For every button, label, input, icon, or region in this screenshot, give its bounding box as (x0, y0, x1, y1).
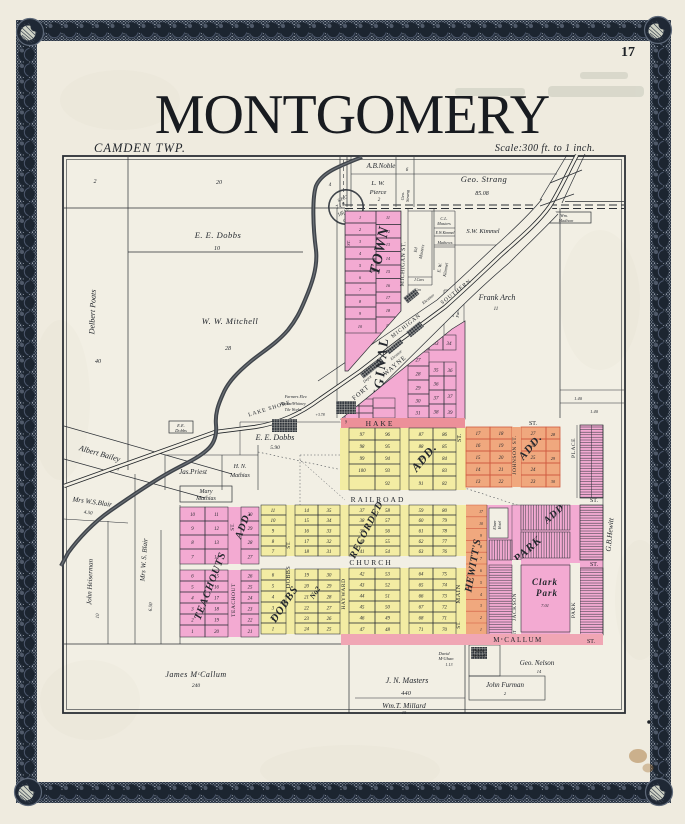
svg-text:MᶜGhan: MᶜGhan (438, 656, 455, 661)
svg-text:46: 46 (360, 617, 365, 622)
svg-text:11: 11 (214, 513, 218, 518)
svg-text:MᶜCALLUM: MᶜCALLUM (493, 636, 543, 644)
svg-text:23: 23 (248, 608, 253, 613)
svg-text:74: 74 (442, 584, 447, 589)
svg-text:Mary: Mary (199, 489, 213, 495)
svg-text:76: 76 (442, 550, 447, 555)
svg-text:2: 2 (94, 179, 97, 185)
svg-text:71: 71 (419, 628, 424, 633)
svg-text:1: 1 (191, 630, 193, 635)
svg-text:67: 67 (419, 606, 424, 611)
svg-text:Hotel: Hotel (498, 521, 502, 530)
svg-text:ST.: ST. (286, 541, 292, 549)
svg-text:5.90: 5.90 (270, 445, 280, 451)
svg-text:School: School (473, 653, 486, 658)
svg-text:Masters: Masters (436, 221, 451, 226)
svg-text:37: 37 (434, 397, 440, 402)
svg-text:86: 86 (442, 433, 447, 438)
svg-text:27: 27 (327, 607, 332, 612)
svg-text:17: 17 (304, 540, 309, 545)
svg-text:5: 5 (480, 581, 482, 585)
svg-text:James MᶜCallum: James MᶜCallum (165, 670, 226, 679)
svg-text:37: 37 (448, 395, 454, 400)
svg-text:22: 22 (304, 607, 309, 612)
svg-text:9: 9 (480, 534, 482, 538)
svg-text:21: 21 (248, 630, 253, 635)
svg-text:17: 17 (621, 45, 635, 60)
svg-text:92: 92 (385, 482, 390, 487)
svg-text:§: § (345, 419, 347, 424)
svg-text:4: 4 (480, 593, 482, 597)
svg-text:6.50: 6.50 (149, 602, 155, 612)
svg-text:Geo. Nelson: Geo. Nelson (520, 659, 555, 667)
svg-text:28: 28 (416, 373, 422, 378)
svg-text:35: 35 (327, 509, 332, 514)
svg-text:JACKSON: JACKSON (512, 593, 518, 621)
svg-text:Tile Works: Tile Works (285, 407, 302, 412)
svg-text:23: 23 (304, 617, 309, 622)
svg-text:14: 14 (304, 509, 309, 514)
svg-text:19: 19 (499, 444, 504, 449)
svg-text:51: 51 (385, 595, 390, 600)
svg-text:10: 10 (479, 522, 483, 526)
svg-text:HAYWARD: HAYWARD (341, 578, 347, 609)
svg-text:15: 15 (402, 710, 407, 715)
svg-text:ST.: ST. (529, 421, 538, 427)
svg-text:25: 25 (248, 586, 253, 591)
svg-text:A.B.Noble: A.B.Noble (366, 162, 396, 170)
svg-text:83: 83 (442, 469, 447, 474)
svg-text:3: 3 (480, 604, 482, 608)
svg-text:71: 71 (442, 617, 447, 622)
svg-text:TEACHOUT: TEACHOUT (231, 583, 237, 617)
svg-text:25: 25 (327, 628, 332, 633)
svg-text:Mathews: Mathews (436, 240, 452, 245)
svg-text:E. E. Dobbs: E. E. Dobbs (194, 230, 242, 240)
svg-text:40: 40 (95, 358, 101, 365)
svg-text:32: 32 (327, 540, 332, 545)
svg-text:99: 99 (360, 457, 365, 462)
svg-text:3: 3 (359, 239, 361, 244)
svg-text:10: 10 (190, 513, 195, 518)
svg-text:Farmers Elev.: Farmers Elev. (284, 394, 308, 399)
svg-text:68: 68 (419, 617, 424, 622)
svg-text:57: 57 (385, 519, 390, 524)
svg-text:55: 55 (385, 540, 390, 545)
svg-text:18: 18 (214, 608, 219, 613)
svg-text:43: 43 (360, 584, 365, 589)
svg-text:80: 80 (442, 509, 447, 514)
svg-text:John Furman: John Furman (486, 681, 524, 689)
svg-text:60: 60 (419, 519, 424, 524)
svg-text:78: 78 (442, 530, 447, 535)
svg-text:39: 39 (448, 411, 454, 416)
svg-text:1.13: 1.13 (446, 662, 453, 667)
svg-text:10: 10 (96, 613, 101, 619)
svg-text:Mathias: Mathias (229, 473, 250, 479)
svg-text:10: 10 (214, 246, 220, 252)
svg-text:15: 15 (386, 269, 390, 274)
svg-text:+3.78: +3.78 (315, 413, 324, 417)
svg-text:20: 20 (216, 180, 222, 186)
svg-text:CHURCH: CHURCH (349, 558, 392, 567)
svg-text:33: 33 (327, 530, 332, 535)
svg-text:48: 48 (385, 628, 390, 633)
svg-text:34: 34 (447, 342, 453, 347)
svg-text:29: 29 (416, 387, 422, 392)
svg-text:44: 44 (360, 595, 365, 600)
svg-text:J.Cars: J.Cars (414, 278, 425, 282)
svg-text:1: 1 (359, 215, 361, 220)
svg-text:1: 1 (272, 628, 274, 633)
svg-text:35: 35 (434, 369, 440, 374)
svg-text:91: 91 (419, 482, 424, 487)
svg-text:62: 62 (419, 540, 424, 545)
svg-text:27: 27 (416, 359, 422, 364)
svg-text:Park: Park (536, 588, 558, 598)
svg-text:59: 59 (419, 509, 424, 514)
svg-text:240: 240 (192, 682, 201, 689)
svg-text:28: 28 (327, 596, 332, 601)
svg-text:98: 98 (360, 445, 365, 450)
svg-text:93: 93 (385, 469, 390, 474)
svg-text:85: 85 (442, 445, 447, 450)
svg-text:19: 19 (304, 574, 309, 579)
svg-text:66: 66 (419, 595, 424, 600)
svg-text:42: 42 (360, 573, 365, 578)
svg-text:47: 47 (360, 628, 365, 633)
svg-text:17: 17 (214, 597, 219, 602)
svg-text:Delbert Poats: Delbert Poats (87, 289, 98, 335)
svg-text:ST.: ST. (590, 498, 599, 504)
svg-text:84: 84 (442, 457, 447, 462)
svg-text:13: 13 (214, 541, 219, 546)
svg-text:MAIN: MAIN (455, 584, 462, 603)
svg-text:11: 11 (386, 215, 390, 220)
svg-text:MONTGOMERY: MONTGOMERY (155, 84, 550, 146)
svg-text:14: 14 (537, 669, 542, 674)
svg-text:4: 4 (359, 251, 361, 256)
svg-text:17: 17 (476, 432, 481, 437)
svg-text:100: 100 (358, 469, 366, 474)
svg-text:65: 65 (419, 584, 424, 589)
svg-text:75: 75 (442, 573, 447, 578)
svg-text:CAMDEN TWP.: CAMDEN TWP. (94, 141, 186, 155)
svg-text:24: 24 (248, 597, 253, 602)
svg-text:ST.: ST. (587, 639, 596, 645)
svg-text:87: 87 (419, 433, 424, 438)
svg-text:Clark: Clark (532, 577, 558, 587)
svg-text:13: 13 (476, 480, 481, 485)
svg-text:Frank Arch: Frank Arch (478, 293, 516, 302)
svg-text:PARK: PARK (571, 602, 577, 618)
svg-text:L. W.: L. W. (370, 180, 385, 187)
svg-text:31: 31 (327, 550, 332, 555)
svg-text:20: 20 (304, 585, 309, 590)
svg-text:49: 49 (385, 617, 390, 622)
svg-text:11: 11 (271, 509, 275, 514)
svg-text:1.40: 1.40 (574, 396, 583, 401)
svg-text:28: 28 (225, 346, 231, 352)
svg-text:HAKE: HAKE (366, 419, 395, 428)
svg-text:26: 26 (248, 575, 253, 580)
svg-text:5: 5 (359, 263, 361, 268)
svg-text:22: 22 (248, 619, 253, 624)
svg-text:27: 27 (248, 556, 253, 561)
svg-text:50: 50 (385, 606, 390, 611)
svg-text:85.08: 85.08 (475, 191, 489, 197)
svg-text:6: 6 (480, 569, 482, 573)
svg-text:KimmelWhitney: KimmelWhitney (279, 401, 306, 406)
svg-text:20: 20 (214, 630, 219, 635)
svg-text:79: 79 (442, 519, 447, 524)
svg-text:72: 72 (442, 606, 447, 611)
svg-text:30: 30 (416, 400, 422, 405)
svg-text:15: 15 (476, 456, 481, 461)
svg-text:S.W. Kimmel: S.W. Kimmel (466, 228, 499, 235)
svg-text:21: 21 (499, 468, 504, 473)
svg-text:Strang: Strang (405, 189, 410, 202)
svg-text:14: 14 (476, 468, 481, 473)
svg-text:73: 73 (442, 595, 447, 600)
svg-text:2: 2 (480, 616, 482, 620)
svg-text:54: 54 (385, 550, 390, 555)
svg-text:56: 56 (385, 530, 390, 535)
svg-text:36: 36 (448, 369, 454, 374)
svg-text:Dobbs: Dobbs (174, 428, 187, 433)
svg-text:Mathias: Mathias (195, 496, 216, 502)
svg-text:H. N.: H. N. (233, 464, 247, 470)
svg-text:34: 34 (327, 519, 332, 524)
svg-text:2: 2 (359, 227, 361, 232)
svg-text:16: 16 (304, 530, 309, 535)
svg-text:18: 18 (499, 432, 504, 437)
svg-text:82: 82 (442, 482, 447, 487)
svg-text:36: 36 (434, 383, 440, 388)
svg-text:94: 94 (385, 457, 390, 462)
svg-text:ST.: ST. (346, 240, 351, 246)
svg-text:Wm.T. Millard: Wm.T. Millard (382, 701, 426, 710)
svg-text:12: 12 (214, 527, 219, 532)
svg-text:E.W.Kimmel: E.W.Kimmel (435, 231, 455, 235)
svg-text:30: 30 (327, 574, 332, 579)
svg-text:28: 28 (248, 541, 253, 546)
svg-text:22: 22 (499, 480, 504, 485)
svg-text:ST.: ST. (457, 433, 463, 442)
svg-text:18: 18 (304, 550, 309, 555)
svg-text:45: 45 (360, 606, 365, 611)
svg-text:J. N. Masters: J. N. Masters (386, 676, 429, 685)
svg-text:ST.: ST. (456, 621, 462, 629)
svg-text:95: 95 (385, 445, 390, 450)
svg-text:7.01: 7.01 (541, 603, 549, 608)
svg-text:Scale:300 ft. to 1 inch.: Scale:300 ft. to 1 inch. (495, 143, 595, 154)
svg-text:52: 52 (385, 584, 390, 589)
svg-text:ST.: ST. (590, 562, 599, 568)
svg-text:70: 70 (442, 628, 447, 633)
svg-text:26: 26 (327, 617, 332, 622)
svg-text:Jas.Priest: Jas.Priest (179, 468, 208, 476)
svg-text:24: 24 (304, 628, 309, 633)
svg-text:W. W. Mitchell: W. W. Mitchell (202, 316, 259, 326)
svg-text:16: 16 (476, 444, 481, 449)
svg-text:24: 24 (531, 468, 536, 473)
svg-text:11: 11 (494, 307, 499, 312)
svg-text:1: 1 (480, 628, 482, 632)
svg-text:25: 25 (531, 456, 536, 461)
svg-text:1.40: 1.40 (590, 409, 599, 414)
svg-text:31: 31 (416, 412, 421, 417)
svg-text:97: 97 (360, 433, 365, 438)
svg-text:29: 29 (327, 585, 332, 590)
svg-text:19: 19 (214, 619, 219, 624)
svg-text:23: 23 (531, 480, 536, 485)
svg-text:10: 10 (271, 519, 276, 524)
svg-text:PLACE: PLACE (571, 438, 577, 458)
svg-text:77: 77 (442, 540, 447, 545)
svg-text:E. E. Dobbs: E. E. Dobbs (255, 433, 295, 442)
svg-text:Elmer: Elmer (493, 520, 497, 531)
svg-text:96: 96 (385, 433, 390, 438)
svg-text:58: 58 (385, 509, 390, 514)
svg-text:20: 20 (499, 456, 504, 461)
svg-text:Pierce: Pierce (369, 189, 387, 196)
svg-text:53: 53 (385, 573, 390, 578)
svg-text:63: 63 (419, 550, 424, 555)
svg-text:John Heiserman: John Heiserman (85, 558, 95, 605)
svg-text:440: 440 (401, 690, 412, 697)
svg-text:64: 64 (419, 573, 424, 578)
svg-text:38: 38 (434, 411, 440, 416)
svg-text:37: 37 (360, 509, 365, 514)
svg-text:61: 61 (419, 530, 424, 535)
svg-text:Geo. Strang: Geo. Strang (461, 174, 508, 184)
svg-text:15: 15 (304, 519, 309, 524)
